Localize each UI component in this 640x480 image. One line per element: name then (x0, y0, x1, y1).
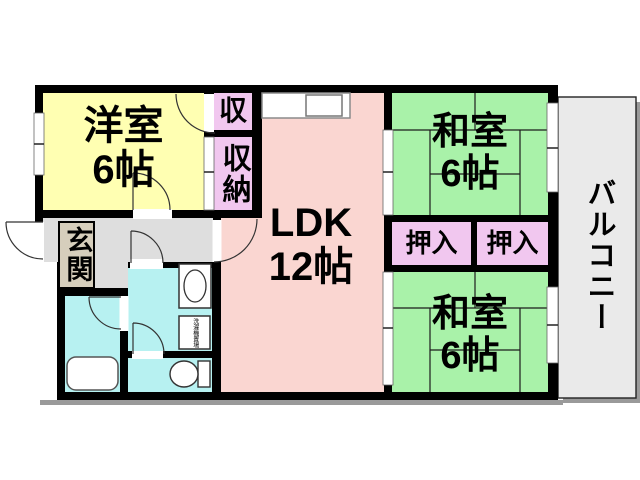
toilet-tank (198, 361, 210, 387)
toilet-bowl (170, 361, 198, 387)
laundry-box-label: 洗濯機置場 (181, 317, 208, 348)
bathtub (67, 357, 118, 390)
oshiire-right-label: 押入 (477, 222, 548, 265)
floorplan-canvas: 洋室 6帖 LDK 12帖 和室 6帖 和室 6帖 収 収納 押入 押入 玄関 … (0, 0, 640, 480)
closet-slider (204, 137, 214, 210)
balcony-label: バルコニー (579, 152, 617, 358)
ldk-label: LDK 12帖 (236, 200, 386, 290)
vanity-basin (184, 270, 206, 302)
kitchen-sink (306, 95, 342, 116)
oshiire-left-label: 押入 (392, 222, 471, 265)
japanese-room-upper-label: 和室 6帖 (392, 106, 548, 202)
japanese-room-lower-label: 和室 6帖 (392, 288, 548, 384)
closet-small-label: 収 (214, 93, 252, 130)
closet-tall-label: 収納 (214, 138, 252, 210)
entrance-label: 玄関 (58, 222, 95, 288)
western-room-label: 洋室 6帖 (43, 98, 204, 198)
